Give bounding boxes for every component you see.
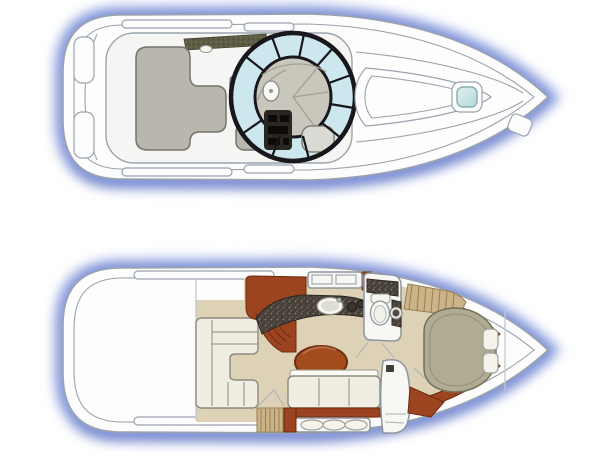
floorplan-svg: Boat floor plan — deck view (top) and ca…	[0, 0, 606, 456]
v-berth	[414, 308, 498, 392]
boat-floorplans-image: Boat floor plan — deck view (top) and ca…	[0, 0, 606, 456]
deck-light	[200, 46, 212, 53]
toilet	[371, 294, 391, 325]
cabin-plan-view	[63, 267, 548, 438]
stove-burner	[348, 303, 357, 312]
entertainment-cabinet	[381, 360, 410, 433]
bow-hatch	[452, 82, 482, 112]
deck-plan-view	[63, 14, 548, 185]
helm-console	[264, 110, 292, 150]
wraparound-windshield	[231, 33, 355, 161]
mid-cabin-berth	[288, 370, 380, 432]
head-sink	[390, 300, 402, 327]
sink-faucet	[337, 298, 341, 302]
galley-sink	[317, 298, 343, 315]
mid-cabin-cushions	[294, 418, 370, 432]
